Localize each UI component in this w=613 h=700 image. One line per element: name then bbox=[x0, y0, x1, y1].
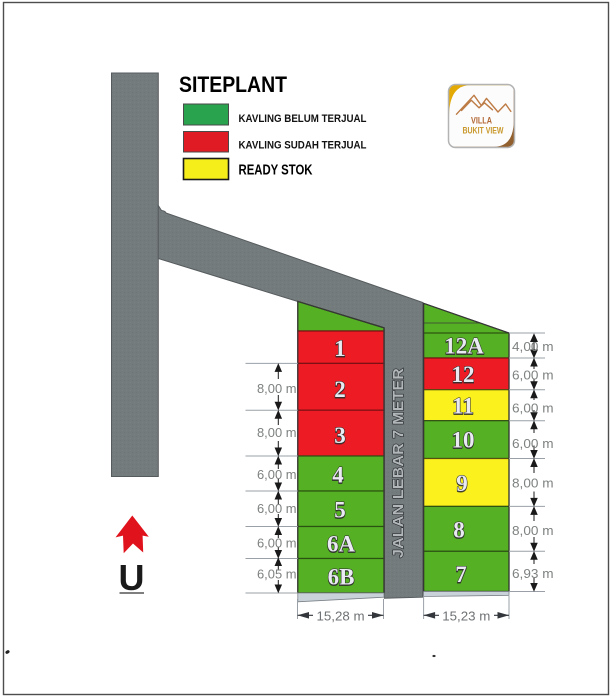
svg-text:KAVLING SUDAH TERJUAL: KAVLING SUDAH TERJUAL bbox=[239, 140, 367, 152]
svg-text:8,00 m: 8,00 m bbox=[257, 425, 297, 440]
svg-text:10: 10 bbox=[452, 428, 475, 453]
svg-text:9: 9 bbox=[456, 471, 468, 496]
svg-text:2: 2 bbox=[334, 377, 346, 402]
svg-text:KAVLING BELUM TERJUAL: KAVLING BELUM TERJUAL bbox=[239, 113, 367, 125]
svg-text:1: 1 bbox=[334, 336, 346, 361]
svg-text:8,00 m: 8,00 m bbox=[512, 523, 554, 538]
svg-text:6,00 m: 6,00 m bbox=[512, 368, 554, 383]
svg-text:BUKIT VIEW: BUKIT VIEW bbox=[463, 125, 505, 135]
svg-text:SITEPLANT: SITEPLANT bbox=[179, 72, 287, 97]
svg-text:4: 4 bbox=[332, 462, 344, 487]
svg-text:READY STOK: READY STOK bbox=[239, 163, 313, 179]
svg-text:6,00 m: 6,00 m bbox=[257, 501, 297, 516]
svg-text:6,00 m: 6,00 m bbox=[257, 536, 297, 551]
svg-text:5: 5 bbox=[334, 498, 346, 523]
svg-text:15,28 m: 15,28 m bbox=[316, 608, 364, 623]
svg-text:12: 12 bbox=[452, 362, 475, 387]
svg-text:6,05 m: 6,05 m bbox=[257, 567, 297, 582]
svg-text:6A: 6A bbox=[327, 532, 356, 557]
svg-text:6,93 m: 6,93 m bbox=[512, 566, 554, 581]
svg-text:6,00 m: 6,00 m bbox=[257, 467, 297, 482]
svg-text:3: 3 bbox=[334, 423, 346, 448]
svg-text:12A: 12A bbox=[444, 334, 484, 359]
svg-text:6,00 m: 6,00 m bbox=[512, 436, 554, 451]
svg-text:11: 11 bbox=[452, 394, 474, 419]
svg-text:15,23 m: 15,23 m bbox=[442, 608, 490, 623]
svg-text:JALAN LEBAR 7 METER: JALAN LEBAR 7 METER bbox=[390, 368, 407, 558]
svg-text:8,00 m: 8,00 m bbox=[257, 381, 297, 396]
svg-text:8,00 m: 8,00 m bbox=[512, 476, 554, 491]
svg-text:7: 7 bbox=[455, 562, 467, 587]
svg-text:6B: 6B bbox=[328, 564, 355, 589]
svg-text:U: U bbox=[119, 557, 145, 598]
svg-text:4,00 m: 4,00 m bbox=[512, 339, 554, 354]
svg-text:6,00 m: 6,00 m bbox=[512, 401, 554, 416]
svg-text:8: 8 bbox=[453, 517, 465, 542]
